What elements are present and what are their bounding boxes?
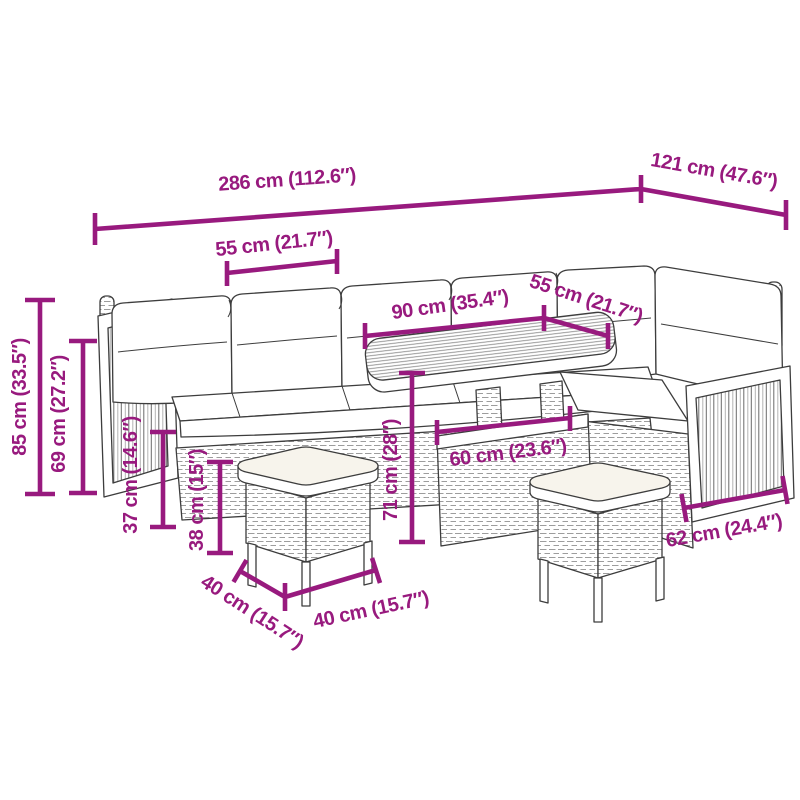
stool-right xyxy=(530,463,670,622)
dim-line-total-width xyxy=(95,175,641,245)
dim-label-backrest-height: 69 cm (27.2″) xyxy=(49,355,69,473)
garden-furniture-set-drawing xyxy=(98,266,794,622)
dim-label-seat-height: 37 cm (14.6″) xyxy=(121,416,141,534)
dim-line-total-depth xyxy=(641,189,786,230)
dim-line-backrest-height xyxy=(69,341,97,493)
furniture-dimension-diagram: 286 cm (112.6″) 121 cm (47.6″) 55 cm (21… xyxy=(0,0,800,800)
dim-label-total-height: 85 cm (33.5″) xyxy=(10,338,30,456)
dim-label-table-height: 71 cm (28″) xyxy=(381,419,401,521)
line-art-canvas xyxy=(0,0,800,800)
dim-label-stool-height: 38 cm (15″) xyxy=(187,449,207,551)
